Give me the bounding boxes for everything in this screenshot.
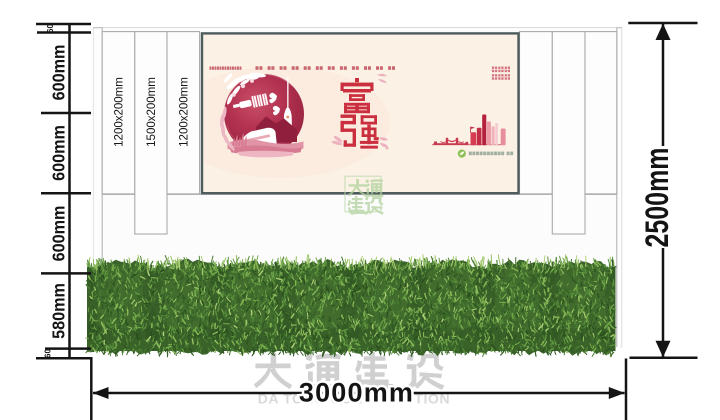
svg-text:60: 60 (46, 24, 55, 33)
svg-text:600mm: 600mm (49, 125, 69, 181)
svg-text:1200x200mm: 1200x200mm (114, 77, 126, 147)
svg-text:60: 60 (44, 349, 53, 358)
svg-text:1500x200mm: 1500x200mm (146, 77, 158, 147)
svg-text:3000mm: 3000mm (299, 377, 414, 407)
svg-text:600mm: 600mm (49, 45, 69, 101)
svg-text:1200x200mm: 1200x200mm (178, 77, 190, 147)
svg-text:580mm: 580mm (49, 283, 69, 339)
svg-text:2500mm: 2500mm (640, 148, 676, 248)
svg-text:600mm: 600mm (49, 206, 69, 262)
